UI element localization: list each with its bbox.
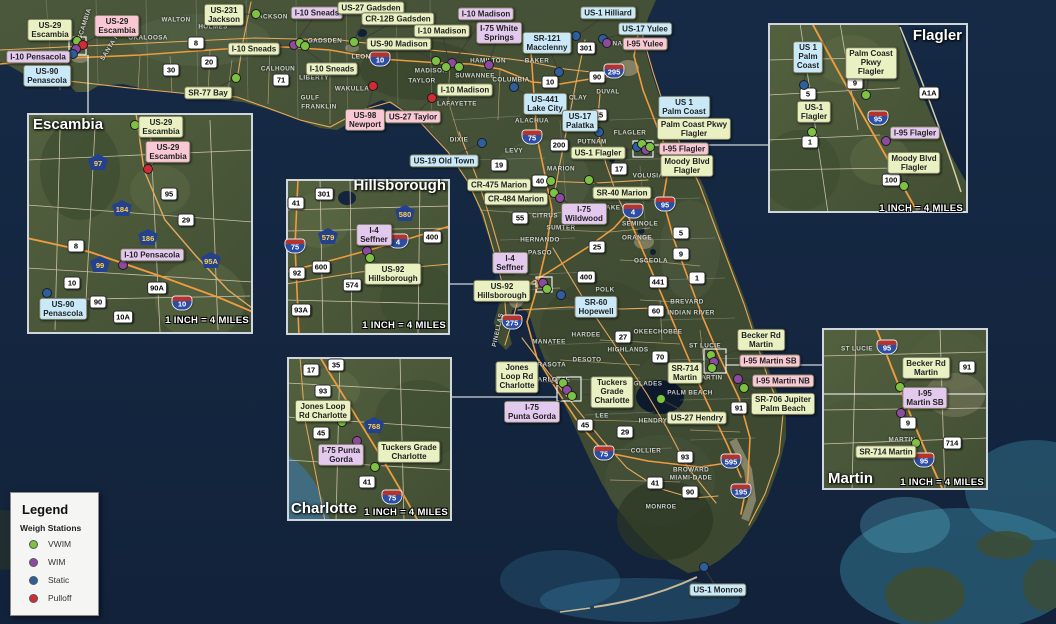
station-label[interactable]: US-441 Lake City — [523, 93, 567, 115]
county-name: LEVY — [505, 148, 523, 155]
legend-item-label: Pulloff — [48, 593, 71, 603]
route-shield-state: 30 — [163, 64, 180, 77]
route-shield-state: 91 — [959, 361, 976, 374]
station-label[interactable]: I-75 Wildwood — [561, 203, 607, 225]
county-name: LEON — [351, 54, 370, 61]
station-label[interactable]: US-1 Hilliard — [580, 6, 636, 19]
county-name: WALTON — [161, 17, 190, 24]
route-shield-state: 1 — [802, 136, 819, 149]
county-name: HERNANDO — [520, 237, 560, 244]
legend-item-label: WIM — [48, 557, 65, 567]
station-dot-static[interactable] — [42, 288, 52, 298]
county-name: CLAY — [569, 95, 587, 102]
station-dot-static[interactable] — [477, 138, 487, 148]
route-shield-interstate: 95 — [915, 454, 934, 467]
legend-item-label: VWIM — [48, 539, 71, 549]
station-dot-vwim[interactable] — [546, 176, 556, 186]
route-shield-state: 17 — [611, 163, 628, 176]
station-dot-vwim[interactable] — [542, 284, 552, 294]
station-label[interactable]: US-231 Jackson — [204, 4, 244, 26]
station-dot-wim[interactable] — [896, 408, 906, 418]
county-name: WAKULLA — [335, 86, 369, 93]
county-name: BREVARD — [670, 299, 703, 306]
route-shield-state: 41 — [359, 476, 376, 489]
inset-title-hillsborough: Hillsborough — [354, 177, 447, 194]
station-label[interactable]: US-19 Old Town — [410, 154, 479, 167]
station-dot-static[interactable] — [699, 562, 709, 572]
route-shield-state: 441 — [649, 276, 668, 289]
station-label[interactable]: SR-77 Bay — [184, 86, 232, 99]
route-shield-state: 5 — [673, 227, 690, 240]
county-name: MARION — [547, 166, 575, 173]
route-shield-state: 90A — [147, 282, 167, 295]
station-label[interactable]: US-17 Palatka — [562, 110, 598, 132]
station-dot-static[interactable] — [509, 82, 519, 92]
route-shield-state: 9 — [673, 248, 690, 261]
legend-dot-wim — [29, 558, 38, 567]
county-name: VOLUSIA — [633, 173, 664, 180]
inset-title-escambia: Escambia — [33, 116, 103, 133]
station-label[interactable]: SR-60 Hopewell — [574, 296, 617, 318]
route-shield-interstate: 95 — [878, 341, 897, 354]
legend-items: VWIMWIMStaticPulloff — [11, 539, 98, 603]
station-label[interactable]: SR-714 Martin — [667, 362, 702, 384]
inset-charlotte — [287, 357, 452, 521]
route-shield-interstate: 95 — [656, 198, 675, 211]
route-shield-state: 400 — [423, 231, 442, 244]
station-dot-vwim[interactable] — [567, 391, 577, 401]
station-label[interactable]: US-27 Taylor — [385, 110, 441, 123]
route-shield-state: 10 — [64, 277, 81, 290]
county-name: FRANKLIN — [301, 104, 336, 111]
route-shield-state: 200 — [550, 139, 569, 152]
route-shield-interstate: 75 — [595, 447, 614, 460]
route-shield-state: 27 — [615, 331, 632, 344]
station-label[interactable]: SR-706 Jupiter Palm Beach — [751, 393, 815, 415]
county-name: DUVAL — [596, 89, 619, 96]
route-shield-state: 29 — [617, 426, 634, 439]
station-label[interactable]: I-10 Pensacola — [120, 248, 184, 261]
station-label[interactable]: US-90 Madison — [366, 37, 431, 50]
station-label[interactable]: I-95 Martin NB — [752, 374, 814, 387]
station-dot-vwim[interactable] — [370, 462, 380, 472]
station-dot-wim[interactable] — [555, 193, 565, 203]
scale-escambia: 1 INCH = 4 MILES — [165, 315, 249, 326]
county-name: ALACHUA — [515, 118, 549, 125]
station-dot-pulloff[interactable] — [143, 164, 153, 174]
station-dot-vwim[interactable] — [584, 175, 594, 185]
county-name: DIXIE — [450, 137, 468, 144]
route-shield-state: 10A — [113, 311, 133, 324]
station-dot-static[interactable] — [554, 67, 564, 77]
legend-item-wim: WIM — [29, 557, 98, 567]
station-dot-vwim[interactable] — [656, 394, 666, 404]
station-label[interactable]: Moody Blvd Flagler — [660, 155, 713, 177]
route-shield-interstate: 75 — [383, 491, 402, 504]
station-label[interactable]: I-95 Martin SB — [739, 354, 800, 367]
station-label[interactable]: I-10 Sneads — [306, 62, 358, 75]
station-label[interactable]: US-29 Escambia — [145, 141, 190, 163]
route-shield-interstate: 4 — [624, 205, 643, 218]
route-shield-state: 1 — [689, 272, 706, 285]
route-shield-state: 90 — [90, 296, 107, 309]
station-label[interactable]: SR-714 Martin — [855, 445, 916, 458]
legend-dot-static — [29, 576, 38, 585]
county-name: GULF — [301, 95, 320, 102]
route-shield-state: 301 — [315, 188, 334, 201]
route-shield-state: 41 — [288, 197, 305, 210]
county-name: HENDRY — [639, 418, 668, 425]
station-dot-vwim[interactable] — [807, 127, 817, 137]
county-name: LAFAYETTE — [437, 101, 477, 108]
station-label[interactable]: Becker Rd Martin — [737, 329, 785, 351]
station-label[interactable]: I-10 Madison — [414, 24, 470, 37]
route-shield-state: 301 — [577, 42, 596, 55]
county-name: DESOTO — [573, 357, 602, 364]
route-shield-state: 400 — [577, 271, 596, 284]
station-dot-wim[interactable] — [484, 60, 494, 70]
county-name: ORANGE — [622, 235, 652, 242]
station-label[interactable]: US-98 Newport — [345, 109, 385, 131]
county-name: MIAMI-DADE — [670, 475, 712, 482]
county-name: OKEECHOBEE — [634, 329, 683, 336]
station-label[interactable]: I-95 Yulee — [623, 37, 668, 50]
station-label[interactable]: US-1 Flagler — [797, 101, 831, 123]
county-name: LEE — [595, 413, 608, 420]
route-shield-state: 35 — [328, 359, 345, 372]
legend-item-pulloff: Pulloff — [29, 593, 98, 603]
station-label[interactable]: I-10 Sneads — [228, 42, 280, 55]
route-shield-state: 8 — [188, 37, 205, 50]
station-label[interactable]: US-92 Hillsborough — [364, 263, 421, 285]
station-label[interactable]: I-4 Seffner — [492, 252, 528, 274]
county-name: CALHOUN — [261, 66, 295, 73]
route-shield-state: 90 — [682, 486, 699, 499]
station-dot-wim[interactable] — [602, 38, 612, 48]
county-name: TAYLOR — [408, 78, 435, 85]
county-name: MANATEE — [532, 339, 565, 346]
station-label[interactable]: US-1 Monroe — [689, 583, 746, 596]
county-name: MONROE — [646, 504, 677, 511]
inset-title-flagler: Flagler — [913, 27, 962, 44]
station-label[interactable]: I-10 Sneads — [291, 6, 343, 19]
route-shield-state: 90 — [589, 71, 606, 84]
county-name: BAKER — [525, 58, 549, 65]
station-dot-vwim[interactable] — [251, 9, 261, 19]
station-dot-vwim[interactable] — [231, 73, 241, 83]
county-name: SUMTER — [547, 225, 576, 232]
station-label[interactable]: Tuckers Grade Charlotte — [590, 376, 633, 408]
county-name: CITRUS — [532, 213, 558, 220]
county-name: GLADES — [634, 381, 663, 388]
route-shield-state: 71 — [273, 74, 290, 87]
route-shield-state: 100 — [882, 174, 901, 187]
station-label[interactable]: Tuckers Grade Charlotte — [377, 441, 440, 463]
route-shield-state: 714 — [943, 437, 962, 450]
station-dot-vwim[interactable] — [454, 62, 464, 72]
route-shield-state: 60 — [648, 305, 665, 318]
station-label[interactable]: US-90 Penascola — [23, 65, 71, 87]
county-name: SEMINOLE — [622, 221, 658, 228]
station-dot-vwim[interactable] — [861, 90, 871, 100]
route-shield-state: 29 — [178, 214, 195, 227]
scale-charlotte: 1 INCH = 4 MILES — [364, 507, 448, 518]
station-label[interactable]: I-10 Madison — [437, 83, 493, 96]
station-dot-static[interactable] — [556, 290, 566, 300]
station-label[interactable]: US-29 Escambia — [27, 19, 72, 41]
legend: Legend Weigh Stations VWIMWIMStaticPullo… — [10, 492, 99, 616]
station-dot-vwim[interactable] — [300, 41, 310, 51]
station-dot-vwim[interactable] — [365, 253, 375, 263]
route-shield-state: 45 — [313, 427, 330, 440]
route-shield-state: 600 — [312, 261, 331, 274]
station-label[interactable]: US-29 Escambia — [94, 15, 139, 37]
legend-item-static: Static — [29, 575, 98, 585]
route-shield-state: 17 — [303, 364, 320, 377]
station-label[interactable]: Palm Coast Pkwy Flagler — [845, 47, 897, 79]
legend-title: Legend — [22, 502, 98, 517]
scale-hillsborough: 1 INCH = 4 MILES — [362, 320, 446, 331]
station-label[interactable]: I-4 Seffner — [356, 224, 392, 246]
station-label[interactable]: I-95 Martin SB — [902, 387, 947, 409]
station-label[interactable]: US-90 Penascola — [39, 298, 87, 320]
station-label[interactable]: I-75 Punta Gorda — [318, 444, 364, 466]
county-name: FLAGLER — [614, 130, 647, 137]
station-label[interactable]: I-10 Pensacola — [6, 50, 70, 63]
station-label[interactable]: I-95 Flagler — [659, 142, 709, 155]
county-name: COLLIER — [631, 448, 661, 455]
station-label[interactable]: CR-484 Marion — [484, 192, 548, 205]
station-dot-vwim[interactable] — [739, 383, 749, 393]
station-label[interactable]: US 1 Palm Coast — [658, 96, 710, 118]
county-name: BROWARD — [673, 467, 709, 474]
legend-dot-pulloff — [29, 594, 38, 603]
route-shield-interstate: 295 — [605, 65, 624, 78]
station-label[interactable]: I-75 Punta Gorda — [504, 401, 560, 423]
legend-subtitle: Weigh Stations — [20, 523, 98, 533]
station-label[interactable]: Jones Loop Rd Charlotte — [295, 400, 351, 422]
route-shield-state: 70 — [652, 351, 669, 364]
county-name: PALM BEACH — [667, 390, 713, 397]
station-dot-vwim[interactable] — [441, 62, 451, 72]
station-label[interactable]: Becker Rd Martin — [902, 357, 950, 379]
station-dot-static[interactable] — [571, 31, 581, 41]
station-dot-wim[interactable] — [118, 260, 128, 270]
station-label[interactable]: US-92 Hillsborough — [473, 280, 530, 302]
route-shield-interstate: 195 — [732, 485, 751, 498]
route-shield-state: 95 — [161, 188, 178, 201]
station-label[interactable]: US-29 Escambia — [138, 116, 183, 138]
route-shield-interstate: 95 — [869, 112, 888, 125]
station-label[interactable]: US 1 Palm Coast — [793, 41, 823, 73]
station-dot-vwim[interactable] — [645, 142, 655, 152]
route-shield-interstate: 595 — [722, 455, 741, 468]
route-shield-state: 91 — [731, 402, 748, 415]
station-dot-pulloff[interactable] — [368, 81, 378, 91]
station-label[interactable]: SR-121 Macclenny — [523, 32, 572, 54]
route-shield-state: 25 — [589, 241, 606, 254]
station-label[interactable]: I-75 White Springs — [476, 22, 522, 44]
scale-flagler: 1 INCH = 4 MILES — [879, 203, 963, 214]
route-shield-state: 9 — [900, 417, 917, 430]
route-shield-state: A1A — [918, 87, 939, 100]
route-shield-interstate: 75 — [523, 131, 542, 144]
county-name: HIGHLANDS — [607, 347, 648, 354]
inset-title-charlotte: Charlotte — [291, 500, 357, 517]
route-shield-state: 45 — [577, 419, 594, 432]
route-shield-state: 93 — [677, 451, 694, 464]
station-dot-pulloff[interactable] — [427, 93, 437, 103]
route-shield-state: 8 — [68, 240, 85, 253]
route-shield-state: 41 — [647, 477, 664, 490]
scale-martin: 1 INCH = 4 MILES — [900, 477, 984, 488]
county-name: POLK — [595, 287, 614, 294]
station-label[interactable]: US-27 Hendry — [667, 411, 727, 424]
station-dot-vwim[interactable] — [707, 363, 717, 373]
legend-dot-vwim — [29, 540, 38, 549]
station-label[interactable]: Palm Coast Pkwy Flagler — [657, 118, 731, 140]
station-label[interactable]: I-10 Madison — [458, 7, 514, 20]
florida-weigh-station-map: Escambia Hillsborough Charlotte Flagler … — [0, 0, 1056, 624]
station-dot-vwim[interactable] — [349, 37, 359, 47]
route-shield-state: 92 — [289, 267, 306, 280]
station-label[interactable]: CR-475 Marion — [467, 178, 531, 191]
route-shield-interstate: 275 — [503, 316, 522, 329]
route-shield-interstate: 75 — [286, 240, 305, 253]
inset-title-martin: Martin — [828, 470, 873, 487]
county-name: ST LUCIE — [689, 343, 721, 350]
legend-item-vwim: VWIM — [29, 539, 98, 549]
county-name: SUWANNEE — [455, 73, 495, 80]
route-shield-state: 93 — [315, 385, 332, 398]
route-shield-state: 19 — [491, 159, 508, 172]
route-shield-state: 574 — [343, 279, 362, 292]
station-label[interactable]: Moody Blvd Flagler — [887, 152, 940, 174]
county-name: ST LUCIE — [841, 346, 873, 353]
station-label[interactable]: US-17 Yulee — [618, 22, 672, 35]
station-dot-vwim[interactable] — [899, 181, 909, 191]
station-dot-vwim[interactable] — [431, 56, 441, 66]
legend-item-label: Static — [48, 575, 69, 585]
route-shield-interstate: 10 — [173, 297, 192, 310]
route-shield-state: 10 — [542, 76, 559, 89]
county-name: PUTNAM — [577, 139, 606, 146]
county-name: INDIAN RIVER — [667, 310, 714, 317]
route-shield-interstate: 10 — [371, 53, 390, 66]
county-name: GADSDEN — [308, 38, 342, 45]
station-dot-static[interactable] — [799, 80, 809, 90]
route-shield-state: 20 — [201, 56, 218, 69]
station-label[interactable]: Jones Loop Rd Charlotte — [495, 361, 538, 393]
station-label[interactable]: I-95 Flagler — [890, 126, 940, 139]
county-name: LIBERTY — [299, 75, 329, 82]
route-shield-state: 55 — [512, 212, 529, 225]
station-label[interactable]: US-1 Flagler — [571, 146, 626, 159]
county-name: PASCO — [528, 250, 552, 257]
county-name: HARDEE — [572, 332, 601, 339]
route-shield-state: 93A — [291, 304, 311, 317]
station-label[interactable]: SR-40 Marion — [592, 186, 651, 199]
county-name: OSCEOLA — [634, 258, 668, 265]
